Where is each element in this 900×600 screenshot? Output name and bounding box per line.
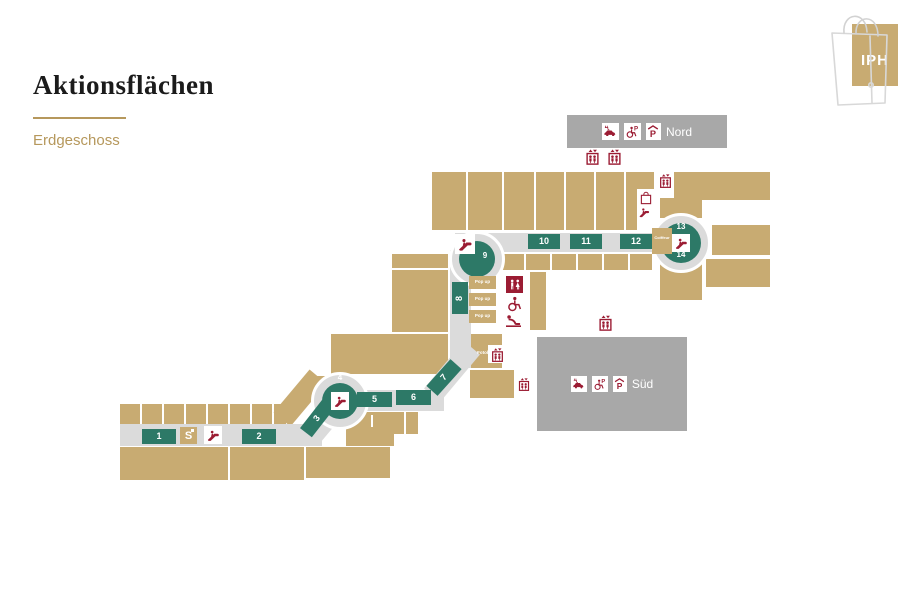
building-block [230, 447, 304, 480]
building-block [500, 254, 628, 270]
accessible-wc-icon [506, 296, 522, 312]
accessible-parking-icon: P [592, 376, 608, 392]
floor-label: Erdgeschoss [33, 132, 120, 149]
sparkasse-icon: S [180, 427, 197, 444]
escalator-icon [672, 234, 690, 252]
building-block [432, 172, 534, 230]
page-title: Aktionsflächen [33, 70, 214, 101]
escalator-icon [331, 392, 349, 410]
building-block [674, 172, 770, 200]
area-marker-4-label: 4 [330, 374, 350, 382]
popup-area-1: Pop up [469, 276, 496, 289]
covered-parking-icon: P [646, 123, 661, 140]
baby-changing-icon [504, 313, 523, 329]
svg-text:P: P [635, 125, 639, 132]
covered-parking-icon: P [613, 376, 627, 392]
elevator-icon [488, 345, 506, 363]
area-marker-2: 2 [242, 429, 276, 444]
building-block [392, 270, 448, 332]
shop-label-strip [318, 331, 331, 375]
title-underline [33, 117, 126, 119]
area-marker-14-label: 14 [671, 251, 691, 259]
building-block [406, 412, 418, 434]
area-marker-8: 8 [452, 282, 468, 314]
zone-label-nord: Nord [666, 125, 692, 139]
car-charging-icon [571, 376, 587, 392]
elevator-icon [608, 148, 621, 165]
svg-text:P: P [602, 378, 606, 384]
building-block [120, 447, 228, 480]
building-block [530, 272, 546, 330]
elevator-icon [586, 148, 599, 165]
building-block [712, 225, 770, 255]
area-marker-11: 11 [570, 234, 602, 249]
shop-label-coiffeur: Coiffeur [652, 236, 672, 240]
escalator-icon [455, 234, 475, 254]
popup-area-2: Pop up [469, 293, 496, 306]
svg-text:P: P [650, 128, 656, 138]
accessible-parking-icon: P [624, 123, 641, 140]
bank-logo-dot [191, 429, 194, 432]
shop-block-coiffeur [652, 228, 672, 254]
building-block [630, 254, 652, 270]
area-marker-8-label: 8 [455, 295, 464, 300]
svg-text:P: P [617, 380, 623, 389]
parking-zone-sued: P P Süd [537, 337, 687, 431]
building-block [392, 254, 448, 268]
elevator-icon [515, 375, 532, 392]
wc-icon [506, 276, 523, 293]
area-marker-5: 5 [357, 392, 392, 407]
building-block [392, 412, 404, 434]
area-marker-13-label: 13 [671, 223, 691, 231]
elevator-icon [599, 314, 612, 331]
building-block [320, 334, 448, 374]
car-charging-icon [602, 123, 619, 140]
building-block [470, 370, 514, 398]
shopping-bag-icon [826, 6, 900, 110]
area-marker-6: 6 [396, 390, 431, 405]
elevator-icon [656, 171, 674, 189]
building-block [706, 259, 770, 287]
area-marker-10: 10 [528, 234, 560, 249]
escalator-icon [204, 426, 222, 444]
parking-zone-nord: P P Nord [567, 115, 727, 148]
escalator-icon [636, 206, 653, 219]
area-marker-1: 1 [142, 429, 176, 444]
zone-label-sued: Süd [632, 377, 653, 391]
shop-divider [371, 415, 373, 427]
popup-area-3: Pop up [469, 310, 496, 323]
shopping-bag-icon [640, 191, 652, 205]
area-marker-9-label: 9 [479, 252, 491, 260]
building-block [120, 404, 286, 424]
area-marker-12: 12 [620, 234, 652, 249]
building-block [306, 447, 390, 478]
